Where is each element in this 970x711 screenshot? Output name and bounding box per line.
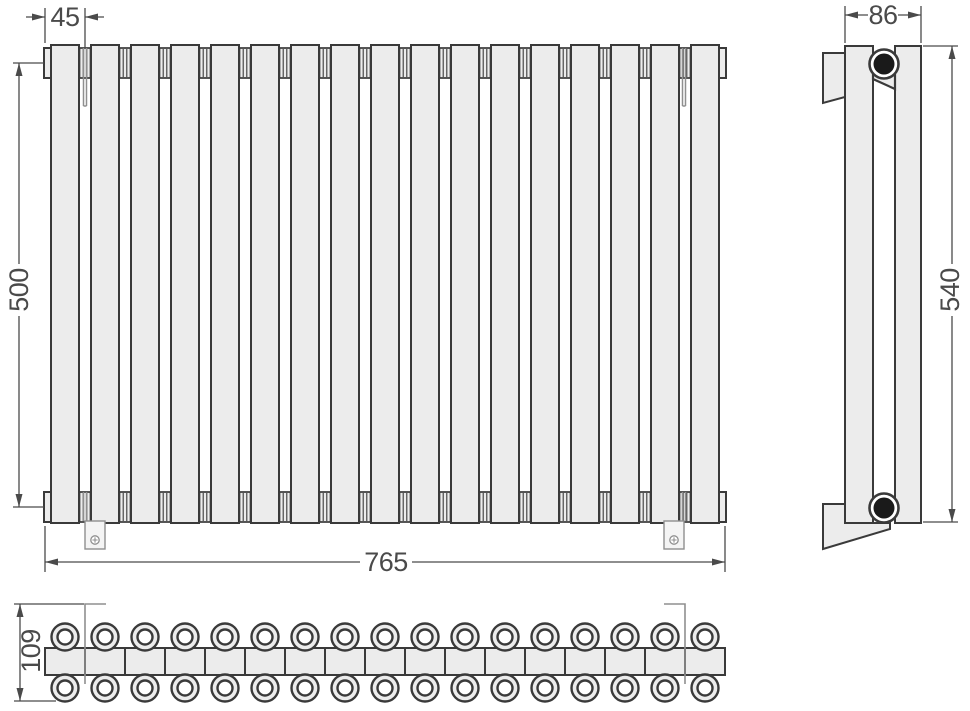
tube-panel [611,45,639,523]
collector-segment [440,492,451,522]
tube-row-front [845,46,873,523]
arrow-icon [908,12,921,19]
side-view [823,46,921,549]
dim-bracket-offset: 45 [26,2,104,48]
tube-ring-inner [98,630,113,645]
tube-ring-inner [618,681,633,696]
dim-label: 540 [935,268,965,312]
dim-label: 765 [364,547,408,577]
dim-label: 86 [868,0,897,30]
tube-ring-inner [298,630,313,645]
arrow-icon [32,14,45,21]
tube-panels [51,45,719,523]
collector-segment [80,492,91,522]
tube-ring-inner [378,630,393,645]
arrow-icon [45,559,58,566]
tube-ring-inner [338,630,353,645]
tube-ring-inner [98,681,113,696]
tube-panel [171,45,199,523]
tube-panel [251,45,279,523]
collector-segment [440,48,451,78]
tube-ring-inner [338,681,353,696]
tube-ring-inner [298,681,313,696]
arrow-icon [17,604,24,617]
dim-label: 109 [16,629,46,673]
tube-ring-inner [458,681,473,696]
tube-ring-inner [258,630,273,645]
tube-ring-inner [658,681,673,696]
dim-width: 765 [45,526,725,577]
collector-segment [600,492,611,522]
tube-ring-inner [538,681,553,696]
collector-segment [360,48,371,78]
tube-ring-inner [58,630,73,645]
collector-segment [520,48,531,78]
tube-panel [691,45,719,523]
tube-ring-inner [578,630,593,645]
tube-ring-inner [658,630,673,645]
arrow-icon [85,14,98,21]
collector-segment [560,48,571,78]
tube-ring-inner [418,630,433,645]
tube-ring-inner [578,681,593,696]
dim-label: 45 [50,2,79,32]
arrow-icon [845,12,858,19]
collector-segment [320,492,331,522]
collector-segment [160,48,171,78]
collector-segment [160,492,171,522]
tube-ring-inner [218,630,233,645]
tube-ring-inner [138,630,153,645]
tube-ring-inner [618,630,633,645]
tube-panel [131,45,159,523]
wall-bracket-top [823,53,845,103]
tube-ring-inner [418,681,433,696]
tube-panel [531,45,559,523]
tube-panel [91,45,119,523]
collector-bar [45,648,725,675]
dim-label: 500 [4,268,34,312]
dim-height: 540 [923,46,965,522]
technical-drawing: 45 500 765 86 540 [0,0,970,711]
tube-ring-inner [258,681,273,696]
tube-ring-inner [378,681,393,696]
collector-segment [640,48,651,78]
collector-segment [120,48,131,78]
tube-ring-inner [218,681,233,696]
collector-segment [200,492,211,522]
tube-ring-inner [538,630,553,645]
collector-segment [200,48,211,78]
tube-panel [291,45,319,523]
dim-center-distance: 500 [4,63,44,507]
collector-segment [520,492,531,522]
collector-segment [240,48,251,78]
tube-ring-inner [698,681,713,696]
collector-segment [80,48,91,78]
collector-port-top-bore [874,54,895,75]
collector-segment [560,492,571,522]
tube-panel [331,45,359,523]
collector-segment [280,48,291,78]
arrow-icon [16,63,23,76]
collector-port-bottom-bore [874,498,895,519]
tube-ring-inner [178,681,193,696]
tube-panel [371,45,399,523]
collector-segment [400,492,411,522]
tube-panel [571,45,599,523]
tube-ring-inner [698,630,713,645]
radiator-drawing-svg: 45 500 765 86 540 [0,0,970,711]
collector-segment [640,492,651,522]
tube-ring-inner [138,681,153,696]
tube-panel [411,45,439,523]
tube-panel [211,45,239,523]
tube-ring-inner [58,681,73,696]
tube-panel [491,45,519,523]
tube-ring-inner [178,630,193,645]
arrow-icon [712,559,725,566]
arrow-icon [949,509,956,522]
tube-ring-inner [458,630,473,645]
arrow-icon [17,688,24,701]
collector-segment [240,492,251,522]
collector-segment [120,492,131,522]
collector-segment [320,48,331,78]
collector-segment [480,48,491,78]
tube-row-back [895,46,921,523]
dim-depth: 86 [845,0,921,43]
front-view [44,45,726,549]
collector-segment [360,492,371,522]
tube-ring-inner [498,630,513,645]
collector-segment [480,492,491,522]
tube-panel [51,45,79,523]
tube-ring-inner [498,681,513,696]
arrow-icon [949,46,956,59]
tube-panel [451,45,479,523]
collector-segment [280,492,291,522]
collector-segment [400,48,411,78]
arrow-icon [16,494,23,507]
top-view [45,604,725,702]
tube-panel [651,45,679,523]
collector-segment [600,48,611,78]
